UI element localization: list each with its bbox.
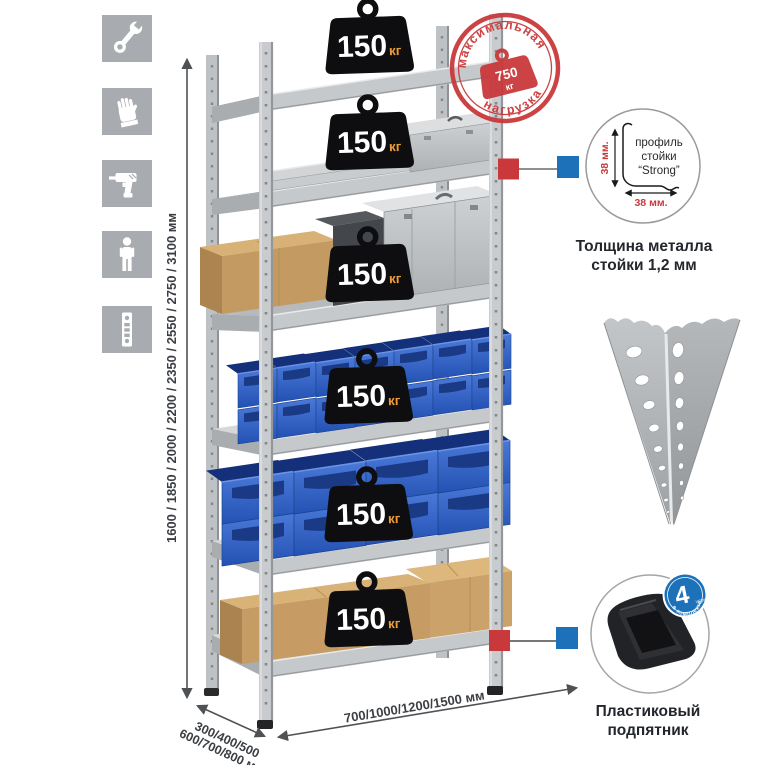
profile-dim-vertical-label: 38 мм. [599, 141, 611, 174]
profile-dim-horizontal-label: 38 мм. [634, 197, 667, 209]
rack-post-icon [122, 313, 132, 347]
rack-post-front-left [257, 42, 273, 729]
height-dimension: 1600 / 1850 / 2000 / 2200 / 2350 / 2550 … [164, 60, 187, 697]
profile-text-line2: стойки [641, 151, 676, 163]
callout-connector-bottom [489, 627, 578, 651]
profile-text-line1: профиль [635, 137, 683, 149]
plastic-foot [257, 720, 273, 729]
load-unit: кг [388, 511, 401, 526]
weight-ring [359, 1, 376, 18]
weight-badge-1: 150 кг [323, 0, 414, 75]
weight-ring [359, 97, 376, 114]
load-unit: кг [389, 139, 402, 154]
profile-caption-line2: стойки 1,2 мм [591, 257, 696, 274]
height-dimension-label: 1600 / 1850 / 2000 / 2200 / 2350 / 2550 … [164, 213, 179, 543]
connector-red-marker [498, 159, 519, 180]
corner-profile-image [604, 318, 740, 526]
load-value: 150 [336, 125, 387, 160]
plastic-foot [487, 686, 503, 695]
load-unit: кг [389, 271, 402, 286]
connector-blue-marker [556, 627, 578, 649]
load-unit: кг [389, 43, 402, 58]
load-value: 150 [335, 497, 386, 532]
width-dimension: 700/1000/1200/1500 мм [279, 687, 576, 737]
profile-detail-callout: 38 мм. 38 мм. профиль стойки “Strong” То… [576, 109, 713, 274]
width-dimension-line [279, 688, 576, 737]
assembly-icons [102, 15, 152, 353]
icon-tile-drill [102, 160, 152, 207]
load-value: 150 [336, 257, 387, 292]
connector-red-marker [489, 630, 510, 651]
foot-caption-line1: Пластиковый [596, 703, 701, 720]
callout-connector-top [498, 156, 579, 180]
load-value: 150 [335, 379, 386, 414]
profile-text-line3: “Strong” [638, 165, 680, 177]
profile-caption-line1: Толщина металла [576, 238, 713, 255]
product-infographic: 1600 / 1850 / 2000 / 2200 / 2350 / 2550 … [0, 0, 765, 765]
load-unit: кг [388, 393, 401, 408]
icon-tile-gloves [102, 88, 152, 135]
connector-blue-marker [557, 156, 579, 178]
infographic-svg: 1600 / 1850 / 2000 / 2200 / 2350 / 2550 … [0, 0, 765, 765]
shelving-rack: 150 кг 150 кг 150 кг 150 кг [200, 0, 512, 729]
depth-dimension: 300/400/500 600/700/800 мм [177, 706, 271, 765]
weight-badge-2: 150 кг [323, 95, 414, 170]
icon-tile-rack-post [102, 306, 152, 353]
max-load-stamp: максимальная нагрузка 750 кг [441, 4, 569, 132]
icon-tile-tools [102, 15, 152, 62]
icon-tile-person [102, 231, 152, 278]
stamp-weight-icon: 750 кг [473, 44, 538, 100]
load-value: 150 [335, 602, 386, 637]
load-unit: кг [388, 616, 401, 631]
plastic-foot-callout: 4 штуки в комплекте Пластиковый подпятни… [591, 569, 711, 739]
load-value: 150 [336, 29, 387, 64]
foot-caption-line2: подпятник [607, 722, 688, 739]
rack-post-back-left [204, 55, 219, 696]
